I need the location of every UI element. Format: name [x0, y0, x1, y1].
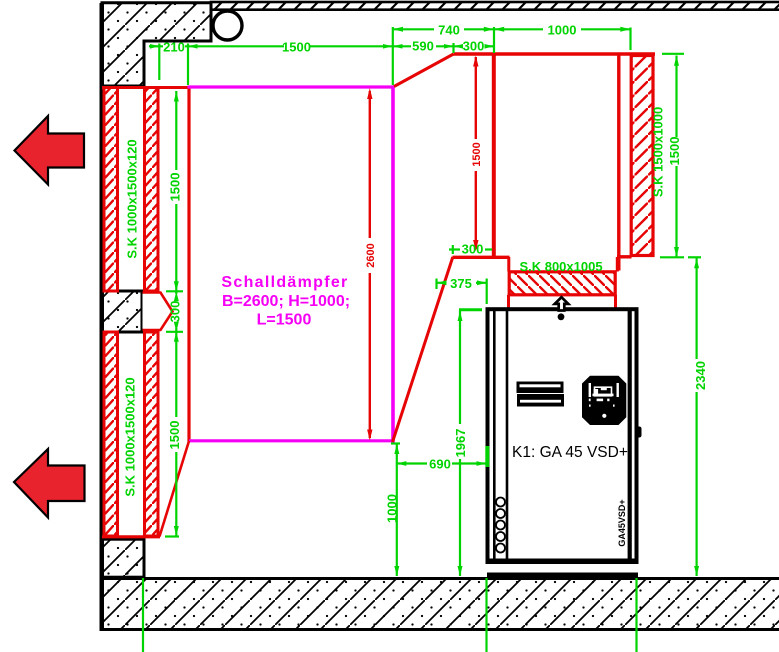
svg-text:L=1500: L=1500: [257, 312, 312, 329]
svg-text:210: 210: [163, 40, 185, 55]
svg-text:GA45VSD+: GA45VSD+: [617, 499, 627, 546]
svg-text:S.K 800x1005: S.K 800x1005: [519, 259, 602, 274]
svg-text:1967: 1967: [453, 429, 468, 458]
svg-text:1000: 1000: [384, 494, 399, 523]
svg-text:1500: 1500: [167, 421, 182, 450]
svg-text:1500: 1500: [667, 137, 682, 166]
svg-text:S.K 1000x1500x120: S.K 1000x1500x120: [125, 139, 140, 258]
svg-text:S.K 1500x1000: S.K 1500x1000: [651, 107, 666, 197]
svg-text:K1: GA 45 VSD+: K1: GA 45 VSD+: [512, 444, 628, 461]
svg-text:1500: 1500: [168, 173, 183, 202]
svg-text:2600: 2600: [365, 243, 377, 267]
svg-text:1500: 1500: [471, 142, 483, 166]
svg-text:300: 300: [168, 301, 183, 323]
svg-text:B=2600; H=1000;: B=2600; H=1000;: [222, 293, 350, 310]
svg-text:300: 300: [462, 242, 484, 257]
svg-text:300: 300: [463, 39, 485, 54]
svg-text:690: 690: [429, 457, 451, 472]
svg-text:S.K 1000x1500x120: S.K 1000x1500x120: [123, 377, 138, 496]
svg-text:590: 590: [412, 39, 434, 54]
svg-text:2340: 2340: [693, 361, 708, 390]
svg-text:1000: 1000: [548, 23, 577, 38]
svg-text:Schalldämpfer: Schalldämpfer: [221, 274, 348, 291]
svg-text:1500: 1500: [282, 40, 311, 55]
svg-text:740: 740: [438, 23, 460, 38]
svg-text:375: 375: [450, 276, 472, 291]
